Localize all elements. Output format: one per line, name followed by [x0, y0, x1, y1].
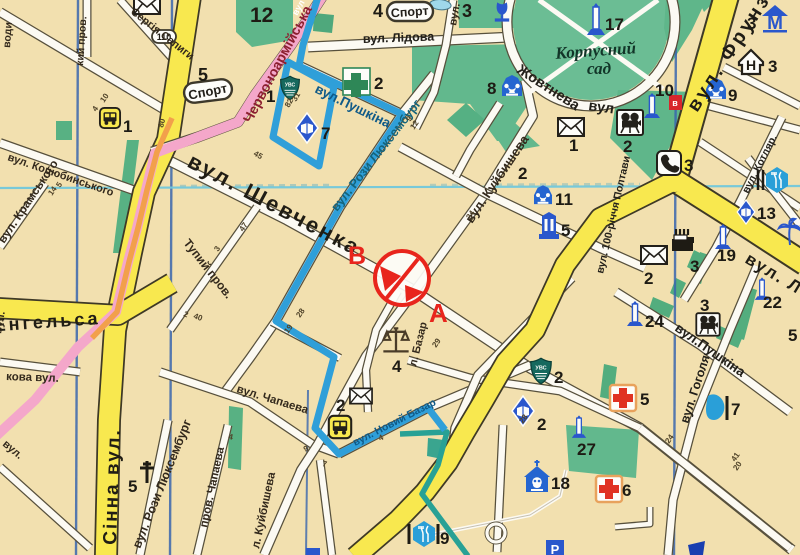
svg-text:2: 2: [554, 368, 563, 387]
svg-text:3: 3: [768, 57, 777, 76]
svg-text:сад: сад: [587, 59, 612, 78]
svg-text:вул. Лідова: вул. Лідова: [363, 29, 436, 46]
svg-text:9: 9: [728, 86, 737, 105]
svg-text:2: 2: [537, 415, 546, 434]
svg-text:19: 19: [717, 246, 736, 265]
svg-text:7: 7: [731, 400, 740, 419]
svg-text:4: 4: [373, 1, 383, 21]
svg-text:2: 2: [623, 137, 632, 156]
svg-text:3: 3: [462, 1, 472, 21]
svg-text:А: А: [429, 298, 448, 328]
svg-text:1: 1: [569, 136, 578, 155]
svg-text:2: 2: [518, 164, 527, 183]
svg-text:5: 5: [198, 65, 208, 85]
svg-text:Спорт: Спорт: [390, 4, 429, 21]
svg-text:3: 3: [690, 257, 699, 276]
svg-text:2: 2: [374, 74, 383, 93]
svg-text:27: 27: [577, 440, 596, 459]
svg-text:1: 1: [266, 87, 275, 106]
svg-text:13: 13: [757, 204, 776, 223]
svg-text:3: 3: [700, 296, 709, 315]
svg-text:22: 22: [763, 293, 782, 312]
svg-text:кова вул.: кова вул.: [6, 371, 59, 385]
svg-text:3: 3: [684, 156, 693, 175]
svg-text:12: 12: [250, 4, 273, 27]
svg-text:11: 11: [555, 190, 573, 209]
svg-text:В: В: [348, 242, 366, 270]
svg-text:9: 9: [440, 529, 449, 548]
svg-text:4: 4: [392, 357, 402, 376]
svg-text:6: 6: [622, 481, 631, 500]
svg-text:2: 2: [644, 269, 653, 288]
svg-text:Р: Р: [551, 542, 560, 555]
svg-text:води: води: [1, 22, 15, 48]
svg-text:5: 5: [788, 326, 797, 345]
svg-text:8: 8: [487, 79, 496, 98]
svg-text:7: 7: [321, 124, 330, 143]
svg-text:2: 2: [336, 396, 345, 415]
svg-text:3: 3: [747, 14, 756, 33]
svg-text:1: 1: [123, 117, 132, 136]
svg-text:10: 10: [655, 81, 674, 100]
svg-text:5: 5: [561, 221, 570, 240]
svg-text:5: 5: [640, 390, 649, 409]
svg-text:17: 17: [605, 15, 624, 34]
svg-text:5: 5: [128, 477, 137, 496]
svg-text:18: 18: [551, 474, 570, 493]
svg-text:Сінна вул.: Сінна вул.: [100, 428, 125, 545]
svg-text:24: 24: [645, 312, 664, 331]
